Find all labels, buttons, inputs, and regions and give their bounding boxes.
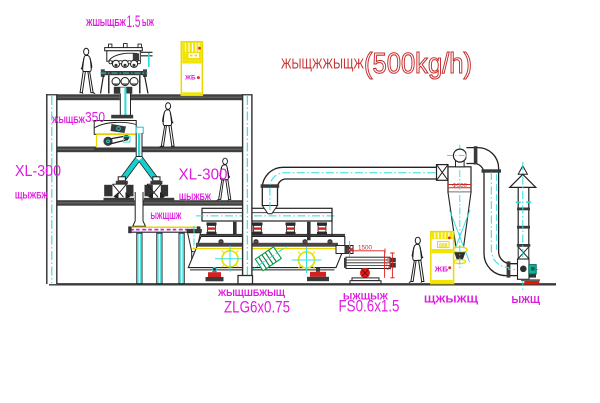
svg-text:500: 500: [387, 257, 393, 270]
svg-text:1500: 1500: [358, 246, 373, 252]
svg-text:ЖБ: ЖБ: [184, 76, 196, 82]
svg-text:ЖЫЩШБЖЫЩ: ЖЫЩШБЖЫЩ: [217, 288, 285, 299]
svg-text:ЩЖЫЖЩ: ЩЖЫЖЩ: [424, 294, 478, 306]
svg-text:(500kg/h): (500kg/h): [364, 48, 472, 80]
svg-text:ЫЖЩ: ЫЖЩ: [512, 294, 541, 306]
svg-text:1.5: 1.5: [127, 12, 141, 31]
svg-text:ЖШЫЩБЖ: ЖШЫЩБЖ: [85, 18, 126, 29]
svg-text:ЩЫЖБЖ: ЩЫЖБЖ: [15, 190, 48, 201]
svg-text:ЖЫЩБЖ: ЖЫЩБЖ: [51, 115, 85, 126]
svg-text:ЖЫЩЖЖЫЩЖ: ЖЫЩЖЖЫЩЖ: [281, 57, 364, 73]
svg-text:ЫЖ: ЫЖ: [142, 18, 155, 29]
svg-text:ЖБ: ЖБ: [433, 267, 448, 274]
svg-text:ZLG6x0.75: ZLG6x0.75: [224, 299, 290, 317]
svg-text:XL-300: XL-300: [179, 167, 228, 184]
svg-text:ЩЫЖБЖ: ЩЫЖБЖ: [179, 192, 212, 202]
svg-text:350: 350: [85, 110, 105, 126]
svg-text:XL-300: XL-300: [15, 163, 61, 180]
svg-text:888: 888: [439, 243, 448, 249]
svg-text:ЫЖЩШЖ: ЫЖЩШЖ: [151, 211, 183, 221]
svg-text:FS0.6x1.5: FS0.6x1.5: [339, 298, 400, 316]
